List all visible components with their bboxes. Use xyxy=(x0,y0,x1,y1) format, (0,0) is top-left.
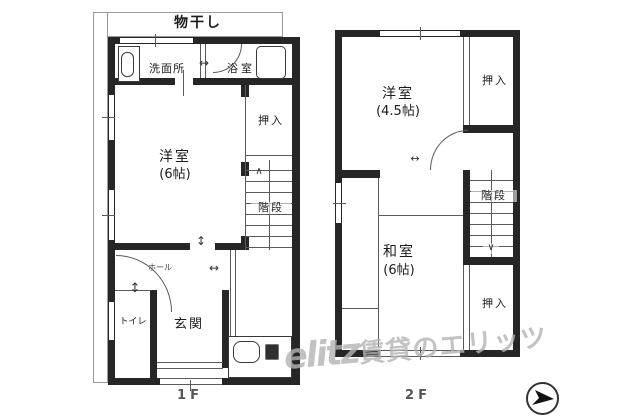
wall xyxy=(460,350,520,357)
swing-door-arrow: ↕ xyxy=(190,235,212,248)
wall xyxy=(108,378,160,385)
kitchen-sink xyxy=(233,341,260,363)
slide-door-arrow: ↔ xyxy=(189,57,219,70)
window-tick xyxy=(102,215,115,216)
wall xyxy=(335,223,342,357)
partition-line xyxy=(246,155,292,156)
window-tick xyxy=(155,34,156,47)
wall xyxy=(463,125,520,133)
wall xyxy=(108,140,115,190)
wall xyxy=(335,350,380,357)
floor2-caption: 2F xyxy=(396,388,440,403)
window xyxy=(108,302,115,340)
window-tick xyxy=(102,117,115,118)
wall xyxy=(463,257,520,265)
compass-arrow xyxy=(532,390,554,405)
partition-line xyxy=(463,37,464,125)
window-tick xyxy=(333,203,346,204)
partition-line xyxy=(342,308,378,309)
toilet-label: トイレ xyxy=(117,318,149,327)
closet-label: 押入 xyxy=(249,115,293,127)
partition-line xyxy=(469,265,470,350)
partition-line xyxy=(469,37,470,125)
wall xyxy=(108,240,115,302)
partition-line xyxy=(379,215,463,216)
door-arc xyxy=(430,130,468,170)
wall xyxy=(335,30,342,183)
compass-icon xyxy=(526,382,559,415)
wall xyxy=(463,170,470,265)
wall xyxy=(222,378,300,385)
step-line xyxy=(157,362,223,363)
window-tick xyxy=(420,27,421,40)
stairs-label: 階段 xyxy=(251,202,291,214)
room-size-label: (4.5帖) xyxy=(363,105,433,119)
swing-door-arrow: ↕ xyxy=(126,282,144,296)
floor1-caption: 1F xyxy=(168,388,212,403)
wall xyxy=(108,37,115,95)
floorplan-canvas: 物干し xyxy=(0,0,640,416)
step-line xyxy=(157,368,223,369)
window-tick xyxy=(420,347,421,360)
stairs-label: 階段 xyxy=(471,190,517,202)
entrance-door xyxy=(160,378,222,385)
window xyxy=(120,37,193,44)
floor1-plan: 物干し xyxy=(93,10,300,385)
slide-door-arrow: ↔ xyxy=(195,262,233,275)
wall xyxy=(193,37,300,44)
wall xyxy=(292,37,300,385)
slide-door-arrow: ↔ xyxy=(401,153,429,165)
floor2-plan: 洋室 (4.5帖) 押入 階段 ∨ 和室 (6帖) 押入 ↔ xyxy=(333,25,525,372)
room-size-label: (6帖) xyxy=(141,168,209,182)
closet-label: 押入 xyxy=(471,75,519,87)
stairs-arrow-up: ∧ xyxy=(251,167,267,178)
stove-icon xyxy=(265,344,279,360)
closet-label: 押入 xyxy=(471,298,519,310)
entrance-label: 玄関 xyxy=(163,318,215,332)
stairs-arrow-down: ∨ xyxy=(483,243,499,254)
room-label: 洋室 xyxy=(141,150,209,165)
hall-label: ホール xyxy=(139,264,181,272)
wall xyxy=(460,30,520,37)
partition-line xyxy=(378,178,379,347)
partition-line xyxy=(463,265,464,350)
wall xyxy=(193,78,292,85)
room-size-label: (6帖) xyxy=(364,264,434,278)
bathroom-label: 浴室 xyxy=(217,63,265,75)
room-label: 和室 xyxy=(364,245,434,260)
partition-line xyxy=(235,250,236,336)
wall xyxy=(115,243,190,250)
room-label: 洋室 xyxy=(363,87,433,102)
drying-strip-left xyxy=(93,12,108,383)
wall xyxy=(335,170,380,178)
drying-area-label: 物干し xyxy=(148,16,248,31)
